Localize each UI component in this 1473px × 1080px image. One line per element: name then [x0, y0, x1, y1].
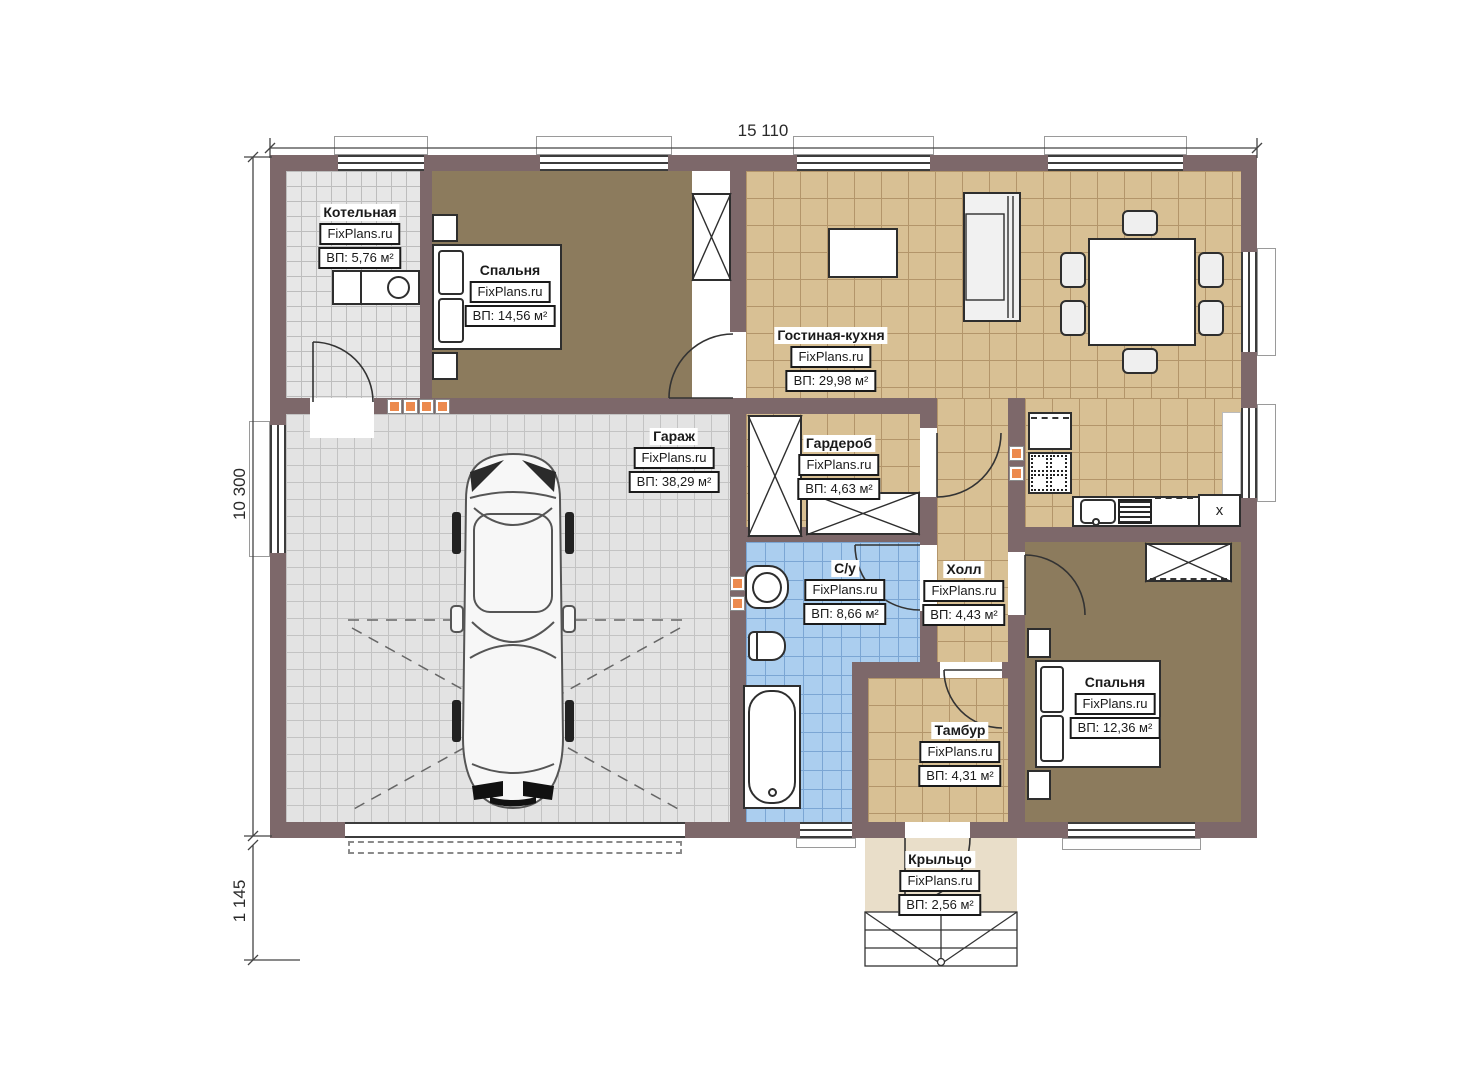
window-sill [249, 421, 270, 557]
room-area: ВП: 38,29 м² [629, 471, 720, 493]
room-brand: FixPlans.ru [923, 580, 1004, 602]
window-bathroom [800, 822, 852, 838]
door-sill-boiler [310, 414, 374, 438]
dimension-width-label: 15 110 [738, 121, 789, 141]
pillow [1040, 715, 1064, 762]
room-brand: FixPlans.ru [798, 454, 879, 476]
room-label-porch: Крыльцо FixPlans.ru ВП: 2,56 м² [898, 851, 981, 916]
dimension-porch-label: 1 145 [230, 880, 250, 923]
window-garage [270, 425, 286, 553]
dining-chair [1198, 300, 1224, 336]
room-area: ВП: 2,56 м² [898, 894, 981, 916]
dining-chair [1198, 252, 1224, 288]
closet-tall [748, 415, 802, 537]
stove-burner [1050, 455, 1067, 472]
room-brand: FixPlans.ru [919, 741, 1000, 763]
sofa [963, 192, 1021, 322]
nightstand [432, 214, 458, 242]
door-opening-boiler [310, 398, 374, 414]
window-bedroom1 [540, 155, 668, 171]
counter-dash [1155, 497, 1193, 499]
dining-table [1088, 238, 1196, 346]
dish-rack [1118, 499, 1152, 524]
stove-burner [1031, 474, 1048, 491]
door-opening-bedroom1 [730, 332, 746, 398]
door-opening-vestibule [940, 662, 1002, 678]
wall-boiler-bedroom [420, 171, 432, 398]
window-sill [1062, 838, 1201, 850]
door-opening-bedroom2 [1008, 552, 1025, 615]
dining-chair [1060, 300, 1086, 336]
stove-burner [1050, 474, 1067, 491]
room-brand: FixPlans.ru [1074, 693, 1155, 715]
coffee-table [828, 228, 898, 278]
bathroom-sink-bowl [752, 572, 782, 603]
window-boiler [338, 155, 424, 171]
room-label-wardrobe: Гардероб FixPlans.ru ВП: 4,63 м² [797, 435, 880, 500]
kitchen-faucet [1092, 518, 1100, 526]
dining-chair [1122, 210, 1158, 236]
room-name: Спальня [477, 262, 543, 279]
window-sill [796, 838, 856, 848]
pillow [1040, 666, 1064, 713]
room-name: Гардероб [803, 435, 875, 452]
wardrobe-dash [1150, 578, 1227, 580]
bathtub-drain [768, 788, 777, 797]
wall-garage-top [286, 398, 937, 414]
dining-chair [1060, 252, 1086, 288]
room-label-vestibule: Тамбур FixPlans.ru ВП: 4,31 м² [918, 722, 1001, 787]
room-label-boiler: Котельная FixPlans.ru ВП: 5,76 м² [318, 204, 401, 269]
window-kitchen-right [1241, 408, 1257, 498]
window-living-right [1241, 252, 1257, 352]
room-area: ВП: 4,43 м² [922, 604, 1005, 626]
room-name: Спальня [1082, 674, 1148, 691]
room-label-bedroom2: Спальня FixPlans.ru ВП: 12,36 м² [1070, 674, 1161, 739]
room-name: Гараж [650, 428, 698, 445]
wall-kitchen-bedroom2 [1025, 527, 1241, 542]
floor-plan: x [0, 0, 1473, 1080]
window-living [797, 155, 930, 171]
window-dining [1048, 155, 1183, 171]
room-brand: FixPlans.ru [899, 870, 980, 892]
room-area: ВП: 5,76 м² [318, 247, 401, 269]
door-opening-wardrobe [920, 428, 937, 497]
room-area: ВП: 14,56 м² [465, 305, 556, 327]
wardrobe-bedroom2 [1145, 543, 1232, 582]
nightstand [1027, 770, 1051, 800]
garage-door [345, 822, 685, 838]
room-label-bedroom1: Спальня FixPlans.ru ВП: 14,56 м² [465, 262, 556, 327]
wall-bath-vestibule [852, 662, 868, 822]
room-name: Котельная [320, 204, 399, 221]
room-brand: FixPlans.ru [633, 447, 714, 469]
dimension-height-label: 10 300 [230, 468, 250, 520]
heater-marker [404, 400, 417, 413]
room-area: ВП: 4,31 м² [918, 765, 1001, 787]
toilet-tank-line [756, 632, 758, 660]
dining-chair [1122, 348, 1158, 374]
door-opening-entrance [905, 822, 970, 838]
garage-apron [348, 841, 682, 854]
room-label-bathroom: С/у FixPlans.ru ВП: 8,66 м² [803, 560, 886, 625]
toilet [748, 631, 786, 661]
room-name: Крыльцо [905, 851, 975, 868]
appliance-mark: x [1216, 502, 1224, 519]
heater-marker [388, 400, 401, 413]
room-area: ВП: 4,63 м² [797, 478, 880, 500]
room-brand: FixPlans.ru [319, 223, 400, 245]
nightstand [432, 352, 458, 380]
room-label-living: Гостиная-кухня FixPlans.ru ВП: 29,98 м² [774, 327, 887, 392]
room-label-hall: Холл FixPlans.ru ВП: 4,43 м² [922, 561, 1005, 626]
heater-marker [731, 577, 744, 590]
room-area: ВП: 29,98 м² [786, 370, 877, 392]
room-label-garage: Гараж FixPlans.ru ВП: 38,29 м² [629, 428, 720, 493]
room-name: Холл [943, 561, 984, 578]
nightstand [1027, 628, 1051, 658]
kitchen-cabinet-dash [1031, 417, 1069, 419]
heater-marker [1010, 467, 1023, 480]
room-name: С/у [831, 560, 859, 577]
window-sill [334, 136, 428, 155]
heater-marker [1010, 447, 1023, 460]
wardrobe-bedroom1 [692, 193, 731, 281]
heater-marker [731, 597, 744, 610]
stove-burner [1031, 455, 1048, 472]
window-sill [1257, 248, 1276, 356]
kitchen-appliance: x [1198, 494, 1241, 527]
washing-machine-divider [360, 272, 362, 303]
room-brand: FixPlans.ru [804, 579, 885, 601]
heater-marker [420, 400, 433, 413]
window-sill [1044, 136, 1187, 155]
washing-machine-drum [387, 276, 410, 299]
room-brand: FixPlans.ru [790, 346, 871, 368]
pillow [438, 298, 464, 343]
window-bedroom2 [1068, 822, 1195, 838]
window-sill [1257, 404, 1276, 502]
room-area: ВП: 12,36 м² [1070, 717, 1161, 739]
porch-steps [865, 912, 1017, 966]
pillow [438, 250, 464, 295]
window-sill [793, 136, 934, 155]
window-sill [536, 136, 672, 155]
room-name: Тамбур [932, 722, 989, 739]
room-name: Гостиная-кухня [774, 327, 887, 344]
room-area: ВП: 8,66 м² [803, 603, 886, 625]
room-brand: FixPlans.ru [469, 281, 550, 303]
wall-bedroom1-living [730, 171, 746, 332]
kitchen-counter-right [1222, 412, 1241, 496]
bathtub-inner [748, 690, 796, 804]
heater-marker [436, 400, 449, 413]
